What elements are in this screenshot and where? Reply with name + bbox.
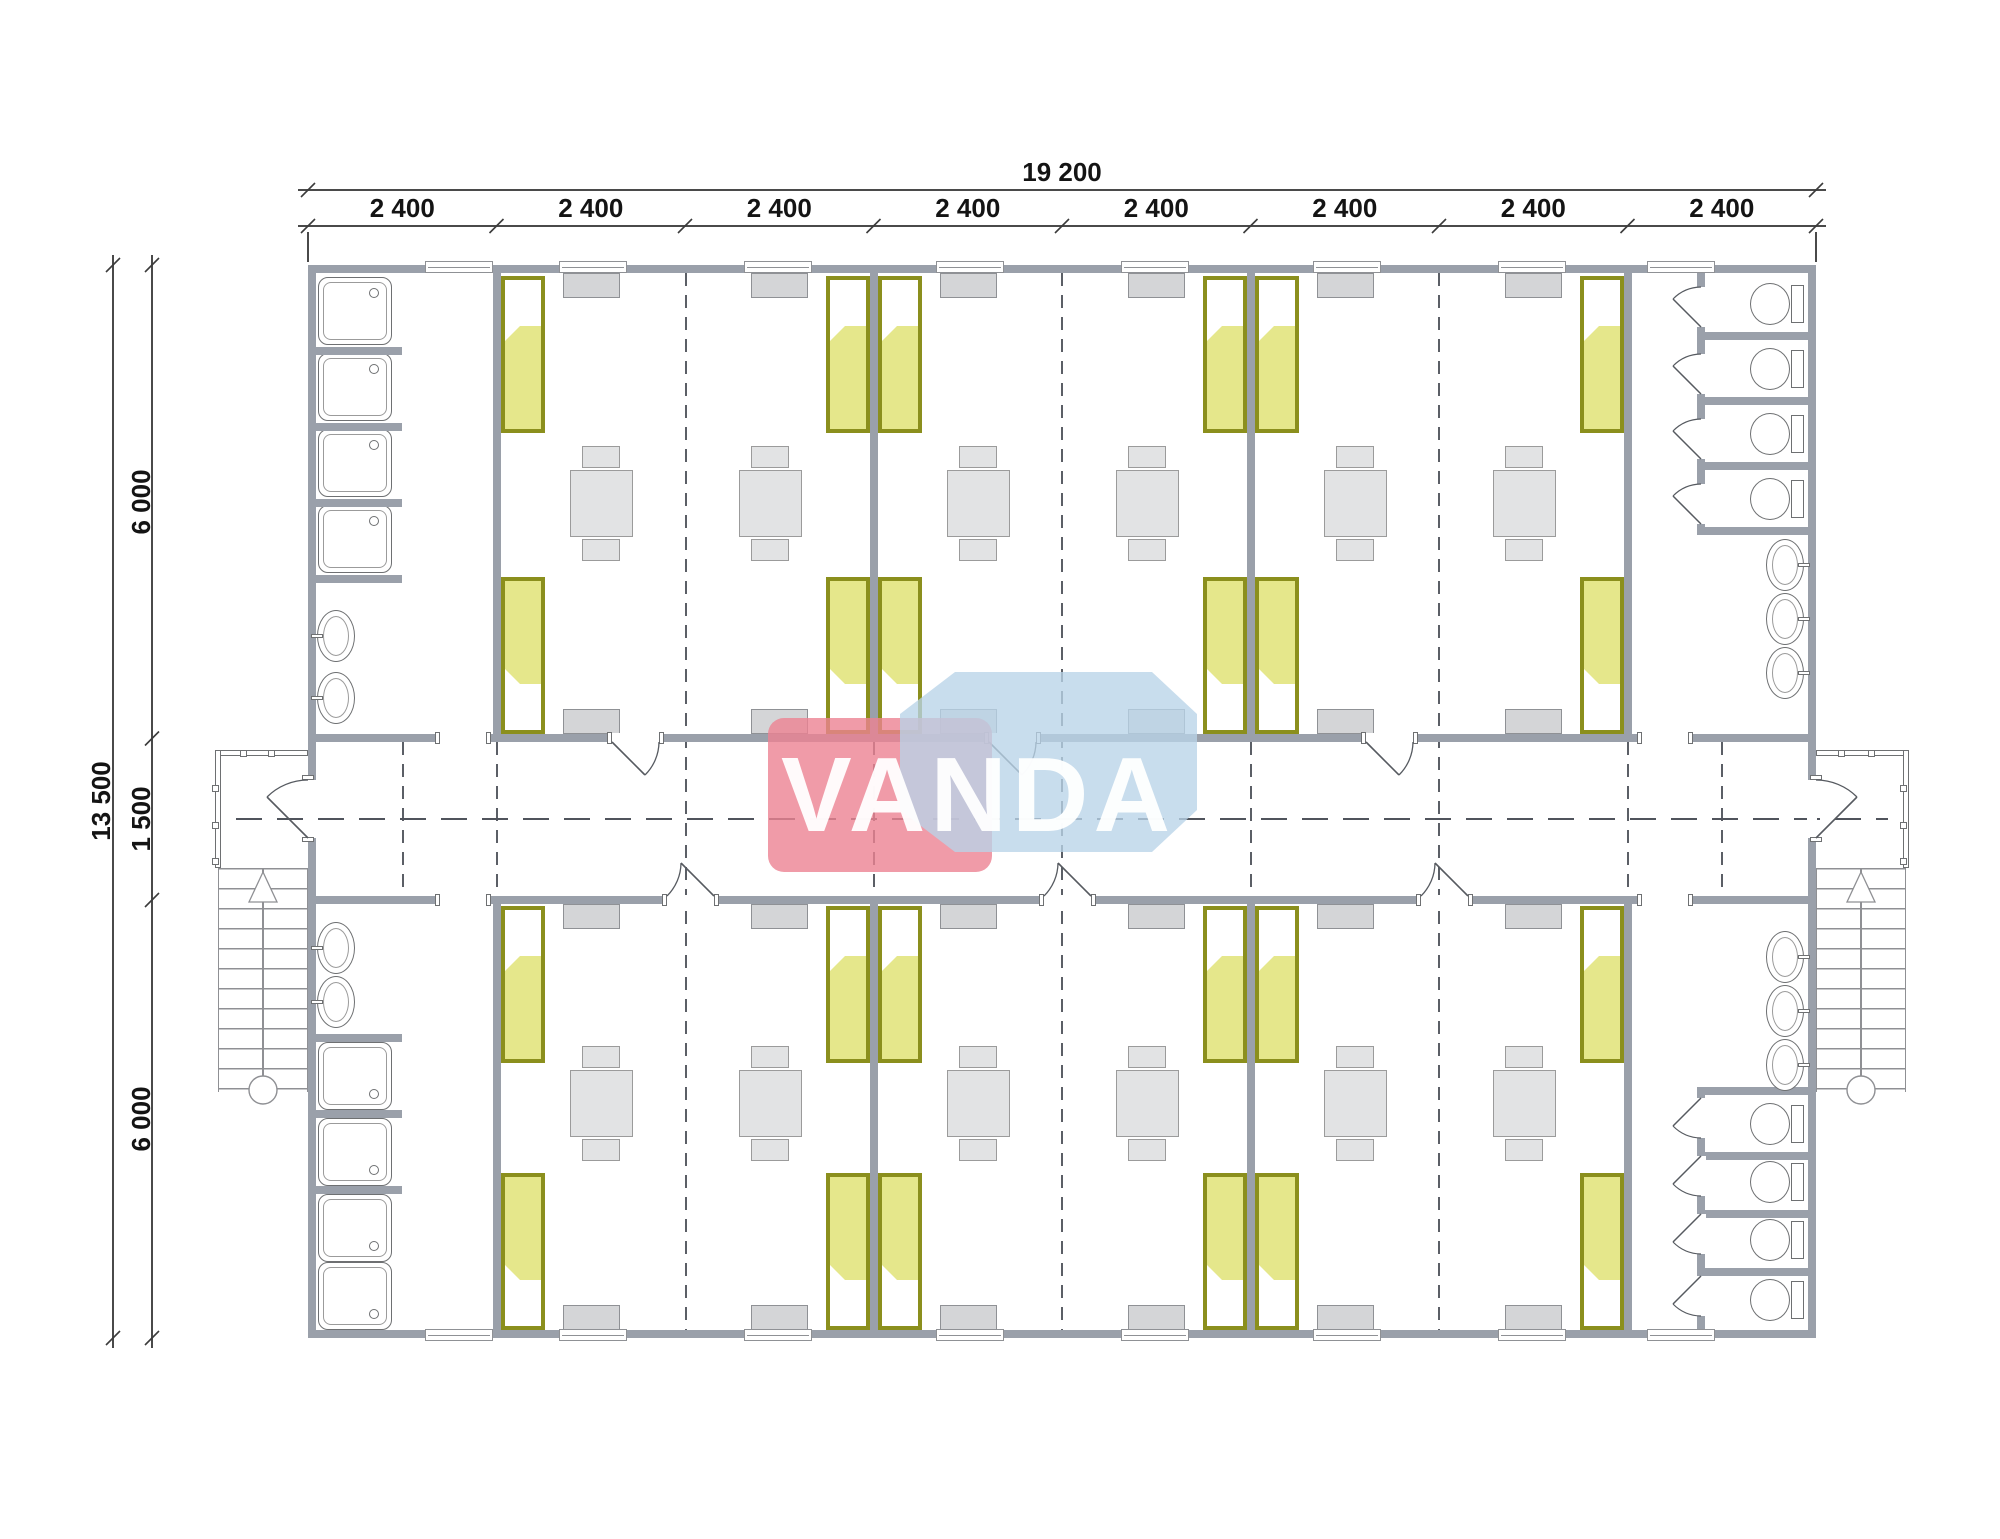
- shower-drain-icon: [369, 516, 379, 526]
- chair: [959, 539, 997, 561]
- basin-inner: [1772, 991, 1798, 1031]
- blanket-fold: [505, 956, 520, 971]
- dimension-label: 6 000: [128, 1086, 154, 1151]
- cabinet: [1317, 273, 1374, 298]
- bed-pillow: [830, 1280, 866, 1326]
- cabinet: [563, 904, 620, 929]
- bed: [1255, 577, 1299, 734]
- dimension-label: 2 400: [1312, 195, 1377, 221]
- basin-inner: [323, 982, 349, 1022]
- basin-inner: [1772, 653, 1798, 693]
- blanket-fold: [1584, 326, 1599, 341]
- window: [1498, 1329, 1566, 1341]
- entry-door-opening: [1807, 780, 1817, 838]
- toilet-tank: [1791, 285, 1804, 323]
- bed: [878, 577, 922, 734]
- table: [739, 470, 802, 537]
- basin-tap: [1798, 955, 1810, 959]
- washroom-partition: [316, 347, 402, 355]
- bed-pillow: [882, 684, 918, 730]
- wc-stall-partition: [1705, 1210, 1808, 1218]
- bed: [878, 906, 922, 1063]
- blanket-fold: [1207, 1265, 1222, 1280]
- door-jamb: [1413, 732, 1418, 744]
- window: [425, 261, 493, 273]
- door-jamb: [302, 837, 314, 842]
- door-jamb: [302, 775, 314, 780]
- basin-inner: [1772, 1045, 1798, 1085]
- cabinet: [1505, 709, 1562, 734]
- room-door-opening: [667, 895, 714, 905]
- door-swing-arc: [1421, 863, 1435, 896]
- shower-tray: [318, 1042, 392, 1110]
- shower-drain-icon: [369, 1089, 379, 1099]
- chair: [751, 446, 789, 468]
- blanket-fold: [1259, 956, 1274, 971]
- dim-line-extension: [307, 232, 308, 262]
- wc-stall-partition: [1705, 1268, 1808, 1276]
- table: [739, 1070, 802, 1137]
- table: [1116, 1070, 1179, 1137]
- basin-tap: [311, 946, 323, 950]
- cabinet: [751, 1305, 808, 1330]
- cabinet: [1505, 273, 1562, 298]
- bed-pillow: [505, 280, 541, 326]
- room-door-opening: [1421, 895, 1468, 905]
- basin-tap: [1798, 1009, 1810, 1013]
- blanket-fold: [882, 1265, 897, 1280]
- door-jamb: [486, 732, 491, 744]
- wall-room-partition: [870, 273, 878, 734]
- wc-door-opening: [1696, 484, 1706, 524]
- chair: [1505, 539, 1543, 561]
- door-jamb: [1810, 837, 1822, 842]
- door-jamb: [1637, 732, 1642, 744]
- toilet-tank: [1791, 1105, 1804, 1143]
- chair: [582, 446, 620, 468]
- window: [936, 261, 1004, 273]
- table: [1116, 470, 1179, 537]
- door-jamb: [1688, 894, 1693, 906]
- chair: [1336, 1046, 1374, 1068]
- toilet-tank: [1791, 1163, 1804, 1201]
- toilet-bowl: [1750, 1103, 1790, 1145]
- dim-line-modules: [298, 225, 1826, 226]
- basin-tap: [1798, 1063, 1810, 1067]
- porch-railing: [215, 750, 221, 868]
- shower-tray: [318, 429, 392, 497]
- wall-room-partition: [1247, 904, 1255, 1330]
- window: [744, 1329, 812, 1341]
- wc-stall-partition: [1705, 462, 1808, 470]
- cabinet: [940, 709, 997, 734]
- washroom-partition: [316, 499, 402, 507]
- washroom-door-opening: [440, 733, 486, 743]
- washroom-partition: [316, 423, 402, 431]
- window: [1313, 1329, 1381, 1341]
- bed-pillow: [1207, 684, 1243, 730]
- railing-post: [1900, 858, 1907, 865]
- door-jamb: [1416, 894, 1421, 906]
- basin-inner: [323, 928, 349, 968]
- door-jamb: [607, 732, 612, 744]
- wc-door-opening: [1696, 1156, 1706, 1196]
- blanket-fold: [1259, 1265, 1274, 1280]
- railing-post: [1868, 750, 1875, 757]
- floor-plan: 2 4002 4002 4002 4002 4002 4002 4002 400…: [0, 0, 2000, 1539]
- bed-pillow: [882, 280, 918, 326]
- bed: [1580, 276, 1624, 433]
- dimension-label: 6 000: [128, 469, 154, 534]
- chair: [1505, 1139, 1543, 1161]
- bed: [878, 1173, 922, 1330]
- toilet-bowl: [1750, 1161, 1790, 1203]
- wc-door-opening: [1696, 1098, 1706, 1138]
- dimension-label: 2 400: [1501, 195, 1566, 221]
- bed: [1255, 276, 1299, 433]
- bed-pillow: [830, 280, 866, 326]
- dimension-total-height: 13 500: [88, 761, 114, 841]
- dimension-label: 2 400: [1689, 195, 1754, 221]
- cabinet: [751, 273, 808, 298]
- wall-exterior-top: [308, 265, 1816, 273]
- blanket-fold: [1207, 326, 1222, 341]
- toilet-bowl: [1750, 1219, 1790, 1261]
- cabinet: [563, 709, 620, 734]
- toilet-tank: [1791, 480, 1804, 518]
- door-jamb: [1637, 894, 1642, 906]
- window-glazing-line: [939, 1335, 1001, 1336]
- toilet-tank: [1791, 1281, 1804, 1319]
- bed-pillow: [1584, 1280, 1620, 1326]
- door-leaf: [1366, 742, 1399, 775]
- wc-door-opening: [1696, 354, 1706, 394]
- blanket-fold: [505, 326, 520, 341]
- chair: [582, 1139, 620, 1161]
- shower-drain-icon: [369, 1241, 379, 1251]
- door-jamb: [1688, 732, 1693, 744]
- blanket-fold: [830, 1265, 845, 1280]
- washroom-partition: [316, 1110, 402, 1118]
- cabinet: [1317, 1305, 1374, 1330]
- blanket-fold: [830, 956, 845, 971]
- chair: [1505, 446, 1543, 468]
- wc-stall-partition: [1705, 332, 1808, 340]
- basin-inner: [1772, 599, 1798, 639]
- bed: [501, 906, 545, 1063]
- window: [559, 1329, 627, 1341]
- blanket-fold: [1584, 669, 1599, 684]
- bed-pillow: [1259, 280, 1295, 326]
- wall-room-partition: [1624, 273, 1632, 734]
- room-door-opening: [612, 733, 659, 743]
- basin-tap: [311, 1000, 323, 1004]
- shower-drain-icon: [369, 364, 379, 374]
- cabinet: [563, 273, 620, 298]
- bed-pillow: [505, 910, 541, 956]
- window-glazing-line: [428, 267, 490, 268]
- chair: [751, 1139, 789, 1161]
- bed: [501, 276, 545, 433]
- room-door-opening: [1044, 895, 1091, 905]
- table: [570, 470, 633, 537]
- bed: [1203, 906, 1247, 1063]
- table: [1493, 470, 1556, 537]
- basin-tap: [1798, 617, 1810, 621]
- dimension-total-width: 19 200: [1022, 159, 1102, 185]
- window-glazing-line: [1501, 267, 1563, 268]
- railing-post: [1900, 785, 1907, 792]
- table: [947, 1070, 1010, 1137]
- bed-pillow: [505, 684, 541, 730]
- shower-tray: [318, 505, 392, 573]
- blanket-fold: [1207, 669, 1222, 684]
- window-glazing-line: [562, 1335, 624, 1336]
- bed: [1255, 906, 1299, 1063]
- bed: [826, 1173, 870, 1330]
- railing-post: [1900, 822, 1907, 829]
- chair: [582, 1046, 620, 1068]
- window-glazing-line: [939, 267, 1001, 268]
- shower-drain-icon: [369, 288, 379, 298]
- railing-post: [268, 750, 275, 757]
- blanket-fold: [505, 669, 520, 684]
- bed-pillow: [882, 910, 918, 956]
- cabinet: [1505, 904, 1562, 929]
- window: [1498, 261, 1566, 273]
- window: [744, 261, 812, 273]
- door-jamb: [435, 732, 440, 744]
- bed-pillow: [830, 910, 866, 956]
- window-glazing-line: [1316, 1335, 1378, 1336]
- toilet-bowl: [1750, 283, 1790, 325]
- blanket-fold: [830, 326, 845, 341]
- blanket-fold: [1207, 956, 1222, 971]
- bed-pillow: [1207, 1280, 1243, 1326]
- door-jamb: [659, 732, 664, 744]
- dimension-label: 1 500: [128, 787, 154, 852]
- door-jamb: [486, 894, 491, 906]
- blanket-fold: [882, 669, 897, 684]
- chair: [959, 1139, 997, 1161]
- door-leaf: [612, 742, 645, 775]
- wall-room-partition: [493, 904, 501, 1330]
- wc-door-opening: [1696, 287, 1706, 327]
- cabinet: [1505, 1305, 1562, 1330]
- wall-exterior-bottom: [308, 1330, 1816, 1338]
- shower-tray: [318, 353, 392, 421]
- bed: [1580, 577, 1624, 734]
- entry-door-opening: [307, 780, 317, 838]
- basin-inner: [1772, 937, 1798, 977]
- window: [1647, 1329, 1715, 1341]
- blanket-fold: [505, 1265, 520, 1280]
- window-glazing-line: [1501, 1335, 1563, 1336]
- basin-inner: [1772, 545, 1798, 585]
- table: [570, 1070, 633, 1137]
- window-glazing-line: [1650, 267, 1712, 268]
- cabinet: [1317, 904, 1374, 929]
- blanket-fold: [882, 956, 897, 971]
- dimension-label: 2 400: [558, 195, 623, 221]
- basin-tap: [311, 696, 323, 700]
- railing-post: [212, 785, 219, 792]
- module-joint-line: [685, 273, 687, 1330]
- dimension-label: 2 400: [370, 195, 435, 221]
- chair: [1336, 1139, 1374, 1161]
- window: [1121, 261, 1189, 273]
- chair: [1128, 1046, 1166, 1068]
- porch-railing: [215, 750, 308, 756]
- door-leaf: [1435, 863, 1468, 896]
- shower-tray: [318, 1262, 392, 1330]
- dim-line-extension: [1815, 232, 1816, 262]
- dimension-label: 2 400: [1124, 195, 1189, 221]
- porch-railing: [1903, 750, 1909, 868]
- window-glazing-line: [562, 267, 624, 268]
- cabinet: [940, 904, 997, 929]
- blanket-fold: [1259, 326, 1274, 341]
- bed: [826, 577, 870, 734]
- window-glazing-line: [1124, 1335, 1186, 1336]
- cabinet: [563, 1305, 620, 1330]
- door-jamb: [1361, 732, 1366, 744]
- chair: [1336, 446, 1374, 468]
- blanket-fold: [830, 669, 845, 684]
- chair: [751, 539, 789, 561]
- bed: [501, 577, 545, 734]
- wc-door-opening: [1696, 419, 1706, 459]
- chair: [1128, 1139, 1166, 1161]
- bed-pillow: [1259, 910, 1295, 956]
- bed-pillow: [1207, 280, 1243, 326]
- door-swing-arc: [645, 742, 659, 775]
- basin-inner: [323, 616, 349, 656]
- cabinet: [1128, 709, 1185, 734]
- washroom-door-opening: [1642, 895, 1688, 905]
- cabinet: [1128, 1305, 1185, 1330]
- dimension-label: 2 400: [747, 195, 812, 221]
- window-glazing-line: [1650, 1335, 1712, 1336]
- bed: [1203, 577, 1247, 734]
- window-glazing-line: [1316, 267, 1378, 268]
- chair: [1505, 1046, 1543, 1068]
- washroom-partition: [316, 1186, 402, 1194]
- washroom-door-opening: [1642, 733, 1688, 743]
- bed-pillow: [1584, 280, 1620, 326]
- door-jamb: [1091, 894, 1096, 906]
- door-jamb: [1810, 775, 1822, 780]
- blanket-fold: [1584, 956, 1599, 971]
- bed: [501, 1173, 545, 1330]
- bed: [1203, 276, 1247, 433]
- bed: [1255, 1173, 1299, 1330]
- porch-railing: [1816, 750, 1909, 756]
- bed: [878, 276, 922, 433]
- shower-drain-icon: [369, 440, 379, 450]
- basin-tap: [1798, 563, 1810, 567]
- toilet-tank: [1791, 415, 1804, 453]
- window-glazing-line: [747, 1335, 809, 1336]
- basin-tap: [1798, 671, 1810, 675]
- washroom-partition: [316, 1034, 402, 1042]
- stair-stringer-line: [262, 868, 263, 1092]
- window: [1647, 261, 1715, 273]
- bed-pillow: [882, 1280, 918, 1326]
- toilet-bowl: [1750, 478, 1790, 520]
- table: [947, 470, 1010, 537]
- door-jamb: [714, 894, 719, 906]
- railing-post: [212, 858, 219, 865]
- dim-line-total-width: [298, 189, 1826, 190]
- wc-stall-partition: [1705, 397, 1808, 405]
- wall-room-partition: [1247, 273, 1255, 734]
- chair: [751, 1046, 789, 1068]
- railing-post: [240, 750, 247, 757]
- window-glazing-line: [747, 267, 809, 268]
- bed-pillow: [1259, 1280, 1295, 1326]
- washroom-door-opening: [440, 895, 486, 905]
- bed-pillow: [830, 684, 866, 730]
- wc-door-opening: [1696, 1276, 1706, 1316]
- door-jamb: [1039, 894, 1044, 906]
- bed: [826, 276, 870, 433]
- shower-tray: [318, 1194, 392, 1262]
- window: [425, 1329, 493, 1341]
- cabinet: [1128, 273, 1185, 298]
- entry-door-arc: [267, 780, 308, 797]
- bed: [1203, 1173, 1247, 1330]
- bed-pillow: [1207, 910, 1243, 956]
- blanket-fold: [1584, 1265, 1599, 1280]
- cabinet: [751, 709, 808, 734]
- window: [559, 261, 627, 273]
- cabinet: [751, 904, 808, 929]
- window: [936, 1329, 1004, 1341]
- door-jamb: [435, 894, 440, 906]
- dimension-label: 2 400: [935, 195, 1000, 221]
- basin-inner: [323, 678, 349, 718]
- cabinet: [1317, 709, 1374, 734]
- door-jamb: [1468, 894, 1473, 906]
- room-door-opening: [1366, 733, 1413, 743]
- toilet-bowl: [1750, 413, 1790, 455]
- module-joint-line: [1438, 273, 1440, 1330]
- chair: [959, 1046, 997, 1068]
- stair-stringer-line: [1860, 868, 1861, 1092]
- wc-door-opening: [1696, 1214, 1706, 1254]
- cabinet: [1128, 904, 1185, 929]
- wall-room-partition: [1624, 904, 1632, 1330]
- table: [1324, 1070, 1387, 1137]
- basin-tap: [311, 634, 323, 638]
- toilet-bowl: [1750, 348, 1790, 390]
- bed: [826, 906, 870, 1063]
- window: [1121, 1329, 1189, 1341]
- shower-drain-icon: [369, 1309, 379, 1319]
- bed: [1580, 1173, 1624, 1330]
- bed: [1580, 906, 1624, 1063]
- toilet-bowl: [1750, 1279, 1790, 1321]
- shower-tray: [318, 277, 392, 345]
- cabinet: [940, 273, 997, 298]
- washroom-partition: [316, 575, 402, 583]
- railing-post: [1838, 750, 1845, 757]
- railing-post: [212, 822, 219, 829]
- blanket-fold: [882, 326, 897, 341]
- blanket-fold: [1259, 669, 1274, 684]
- chair: [1128, 446, 1166, 468]
